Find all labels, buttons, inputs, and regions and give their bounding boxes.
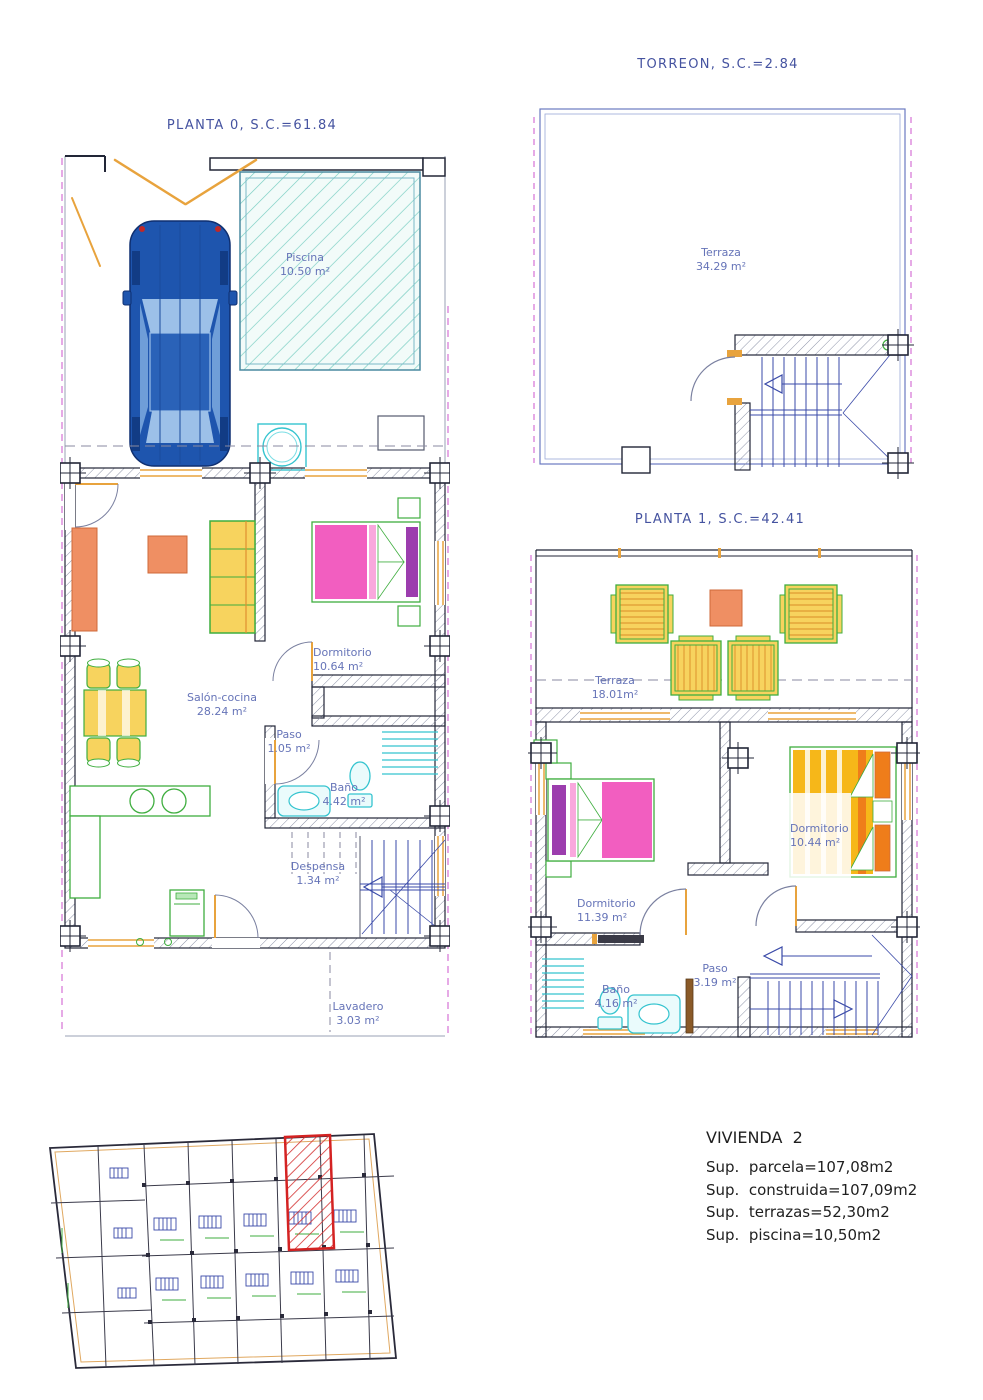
dining-table (84, 659, 146, 767)
bedroom-door (273, 642, 312, 681)
summary-line-piscina: Sup. piscina=10,50m2 (706, 1224, 917, 1247)
vivienda-summary: VIVIENDA 2 Sup. parcela=107,08m2 Sup. co… (706, 1128, 917, 1246)
entry-door (65, 482, 118, 530)
torreon-title: TORREON, S.C.=2.84 (637, 57, 799, 72)
roof-box (622, 447, 650, 473)
room-label-paso-p1: Paso3.19 m² (693, 933, 736, 1019)
column (882, 329, 914, 361)
room-label-despensa: Despensa1.34 m² (291, 831, 345, 917)
stair-door (691, 350, 742, 405)
sideboard (72, 528, 187, 631)
room-label-dormitorio-p0: Dormitorio10.64 m² (313, 617, 372, 703)
room-label-dormitorio-1139: Dormitorio11.39 m² (577, 868, 636, 954)
floor-plan-sheet: PLANTA 0, S.C.=61.84 TORREON, S.C.=2.84 … (0, 0, 983, 1400)
column (882, 447, 914, 479)
car (123, 221, 237, 466)
summary-line-construida: Sup. construida=107,09m2 (706, 1179, 917, 1202)
summary-line-terrazas: Sup. terrazas=52,30m2 (706, 1201, 917, 1224)
stairwell (735, 335, 903, 470)
room-label-salon-cocina: Salón-cocina28.24 m² (187, 662, 257, 748)
planta1-title: PLANTA 1, S.C.=42.41 (635, 512, 805, 527)
room-label-terraza-torreon: Terraza34.29 m² (696, 217, 746, 303)
patio-box (378, 416, 424, 450)
planta0-title: PLANTA 0, S.C.=61.84 (167, 118, 337, 133)
bed-left (534, 740, 654, 877)
kitchen-counter (70, 786, 210, 898)
room-label-bano-p0: Baño4.42 m² (322, 752, 365, 838)
room-label-bano-p1: Baño4.16 m² (594, 954, 637, 1040)
stairs (360, 836, 445, 938)
room-label-piscina: Piscina10.50 m² (280, 222, 330, 308)
room-label-terraza-p1: Terraza18.01m² (592, 645, 639, 731)
planta0-drawing (60, 146, 450, 1041)
room-label-lavadero: Lavadero3.03 m² (333, 971, 384, 1057)
vivienda-title: VIVIENDA 2 (706, 1128, 917, 1147)
lavadero-door (212, 895, 260, 948)
lounger (780, 585, 842, 643)
sofa (210, 521, 255, 633)
terrace-table (710, 590, 742, 626)
highlighted-unit-vivienda2 (285, 1135, 334, 1250)
room-label-dormitorio-1044: Dormitorio10.44 m² (788, 793, 851, 879)
stairs (750, 935, 912, 1035)
bed-planta0 (312, 498, 420, 626)
fridge (170, 890, 204, 936)
summary-line-parcela: Sup. parcela=107,08m2 (706, 1156, 917, 1179)
site-plan-drawing (42, 1128, 402, 1373)
terrace-chair (728, 636, 778, 700)
lounger (611, 585, 673, 643)
room-label-paso-p0: Paso1.05 m² (267, 699, 310, 785)
terrace-chair (671, 636, 721, 700)
